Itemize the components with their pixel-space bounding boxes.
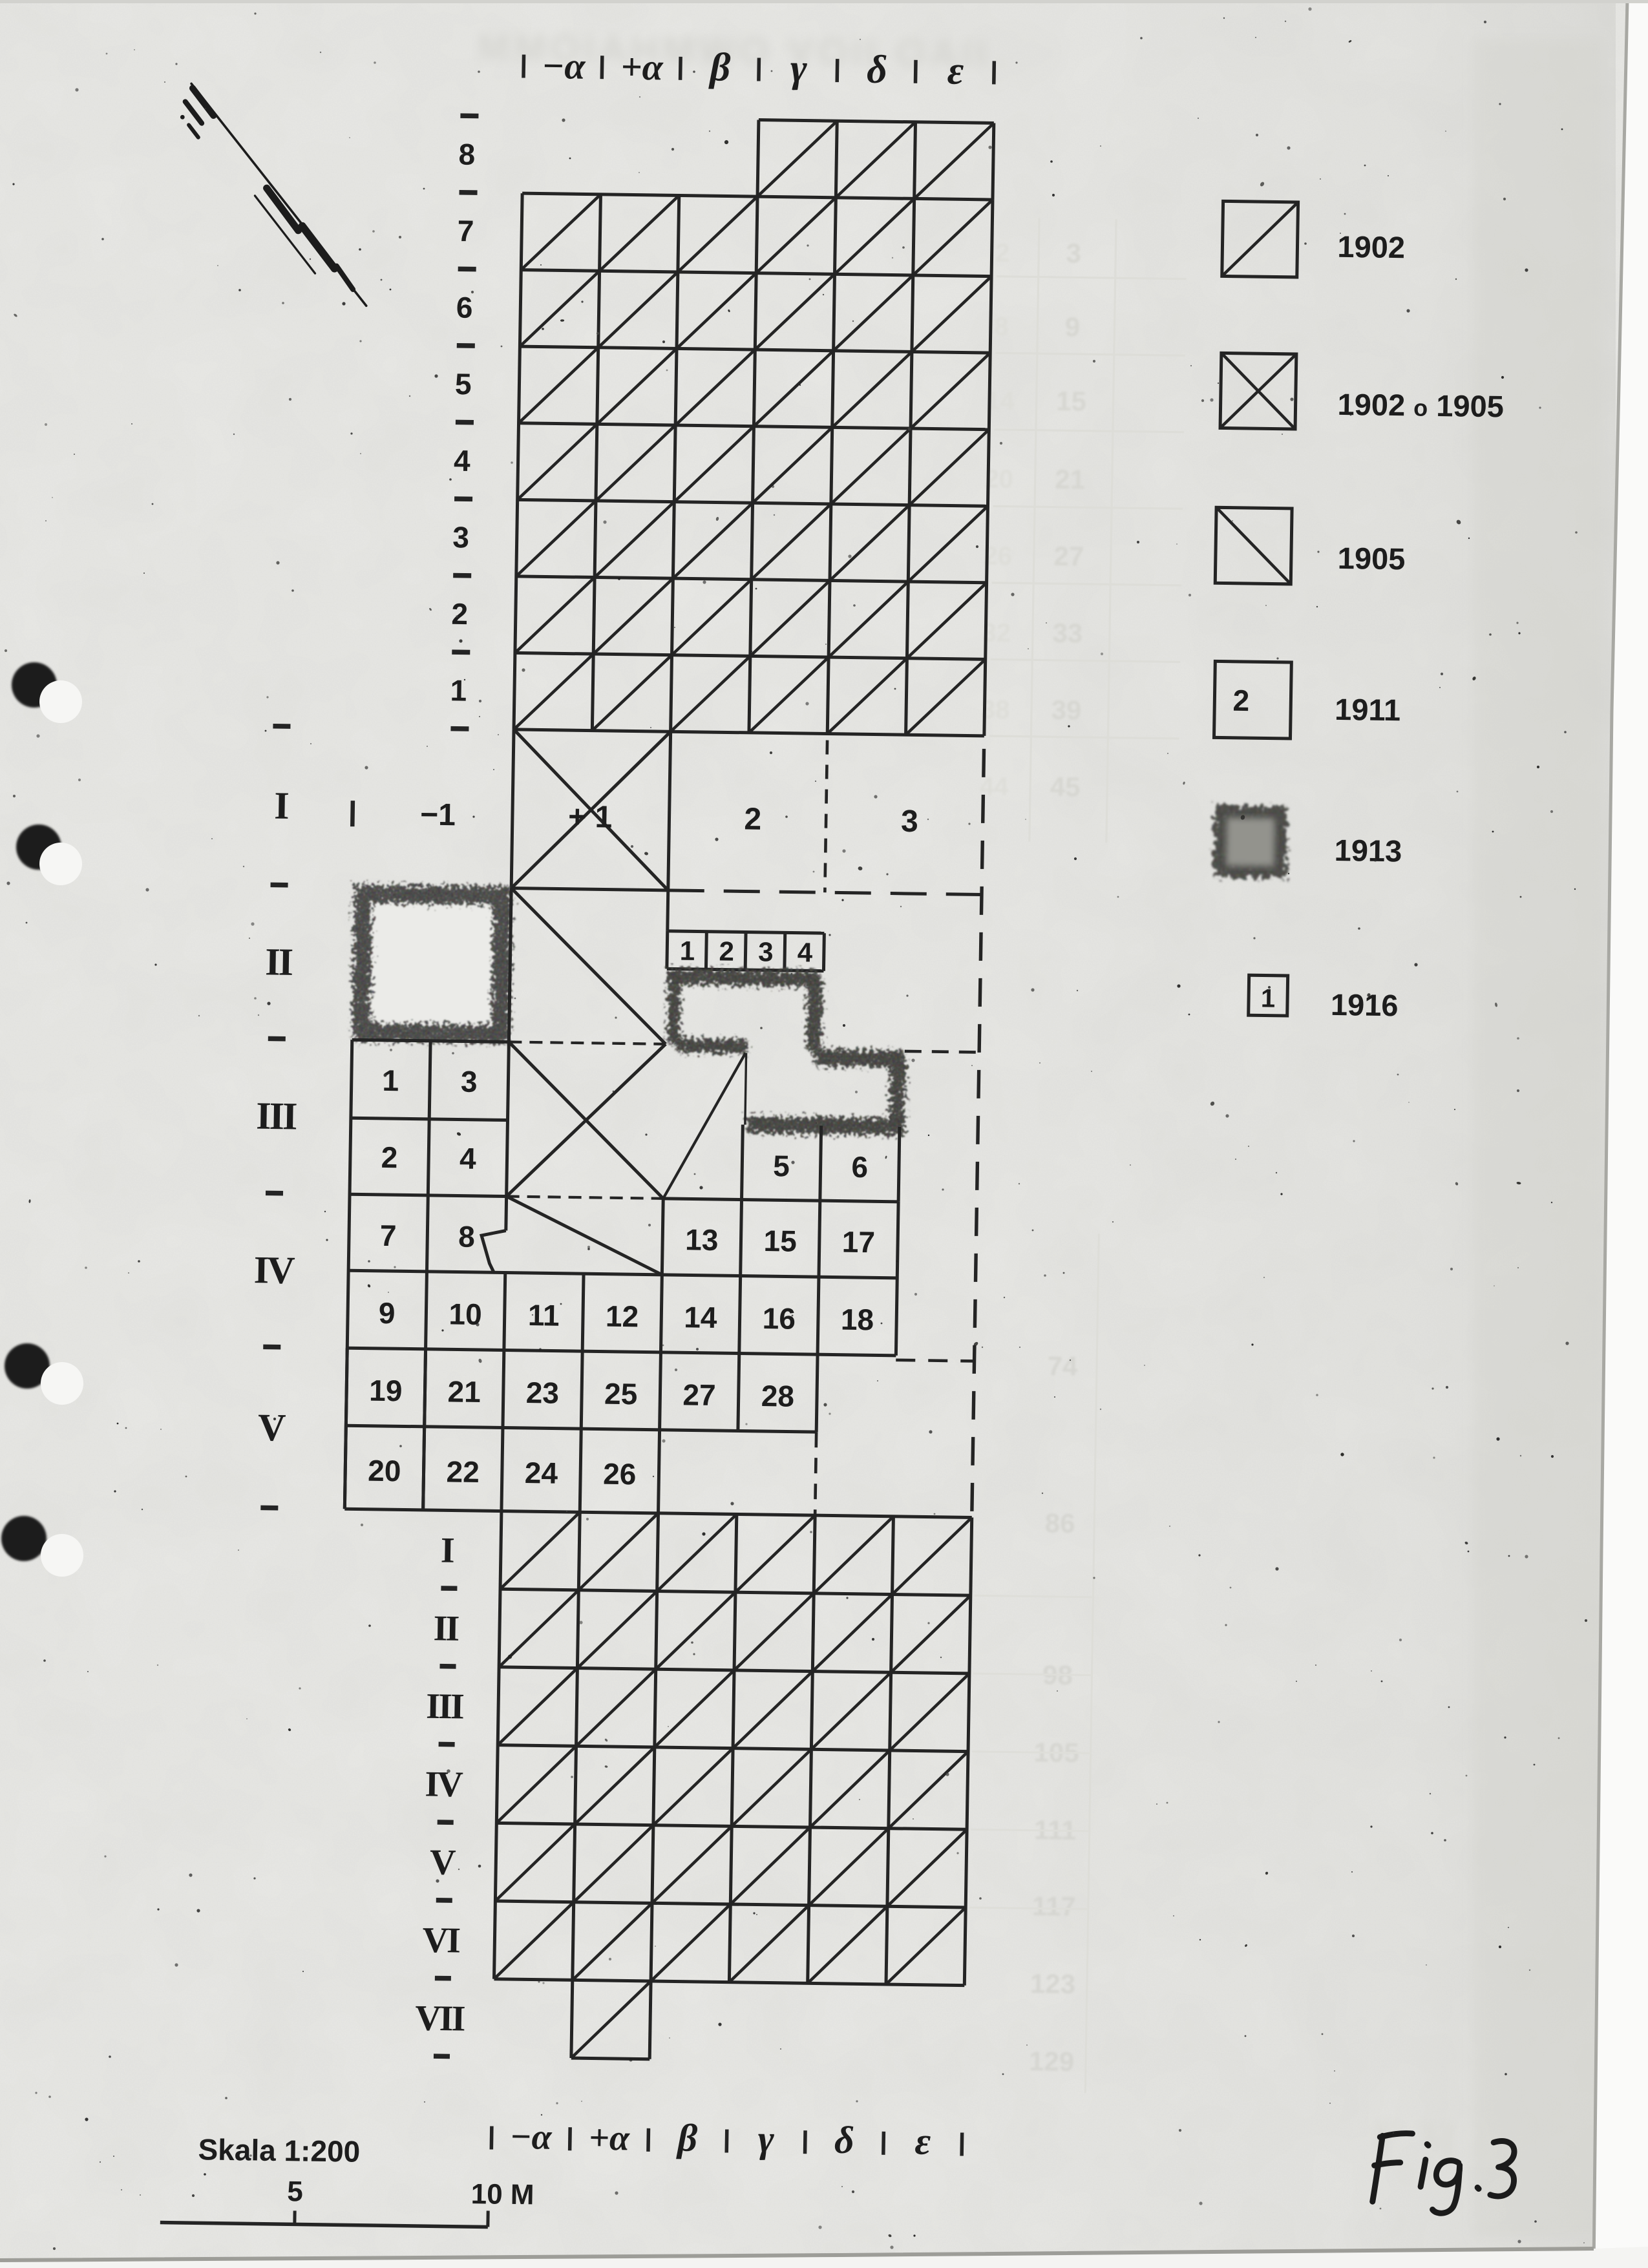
- svg-text:IV: IV: [425, 1764, 463, 1805]
- svg-text:3: 3: [452, 520, 469, 554]
- svg-text:19: 19: [369, 1374, 403, 1408]
- svg-text:2: 2: [451, 597, 468, 631]
- svg-text:1905: 1905: [1337, 541, 1405, 576]
- svg-text:15: 15: [1056, 386, 1086, 417]
- svg-text:VII: VII: [415, 1998, 465, 2039]
- svg-text:24: 24: [524, 1456, 558, 1490]
- svg-text:I: I: [274, 784, 289, 827]
- svg-text:1: 1: [1261, 984, 1276, 1013]
- svg-text:22: 22: [446, 1454, 480, 1489]
- svg-text:1916: 1916: [1331, 987, 1399, 1022]
- svg-text:33: 33: [1052, 618, 1083, 649]
- svg-text:9: 9: [379, 1296, 396, 1330]
- svg-text:2: 2: [381, 1140, 397, 1174]
- svg-text:20: 20: [368, 1454, 401, 1488]
- svg-text:8: 8: [458, 137, 475, 171]
- svg-text:17: 17: [841, 1225, 875, 1259]
- svg-text:86: 86: [1044, 1507, 1075, 1538]
- svg-text:1: 1: [680, 936, 695, 966]
- svg-text:14: 14: [684, 1300, 717, 1334]
- svg-text:γ: γ: [790, 47, 807, 90]
- svg-text:28: 28: [761, 1379, 794, 1413]
- svg-text:6: 6: [456, 291, 473, 324]
- svg-text:−α: −α: [509, 2117, 553, 2158]
- svg-text:27: 27: [682, 1378, 716, 1412]
- svg-text:45: 45: [1050, 772, 1080, 803]
- svg-text:7: 7: [457, 214, 474, 247]
- svg-text:ε: ε: [947, 48, 964, 92]
- svg-text:V: V: [258, 1406, 286, 1449]
- svg-text:27: 27: [1053, 541, 1084, 572]
- svg-text:3: 3: [758, 936, 774, 967]
- svg-text:123: 123: [1030, 1968, 1076, 1999]
- svg-text:74: 74: [1047, 1350, 1078, 1381]
- svg-text:5: 5: [773, 1149, 790, 1182]
- svg-text:−α: −α: [542, 45, 586, 87]
- svg-text:5: 5: [287, 2176, 303, 2207]
- svg-text:β: β: [676, 2116, 698, 2159]
- svg-text:δ: δ: [834, 2119, 855, 2161]
- svg-text:IV: IV: [253, 1248, 295, 1292]
- svg-text:8: 8: [994, 313, 1009, 341]
- svg-text:16: 16: [762, 1301, 796, 1336]
- svg-text:Skala 1:200: Skala 1:200: [198, 2132, 360, 2168]
- svg-text:β: β: [708, 45, 731, 89]
- svg-text:γ: γ: [757, 2117, 774, 2160]
- svg-text:2: 2: [744, 802, 762, 836]
- svg-text:+α: +α: [620, 46, 664, 89]
- svg-text:129: 129: [1029, 2046, 1075, 2077]
- svg-text:1911: 1911: [1335, 692, 1401, 727]
- svg-text:23: 23: [525, 1376, 559, 1410]
- svg-text:III: III: [426, 1686, 464, 1727]
- svg-text:1913: 1913: [1334, 833, 1402, 868]
- svg-text:II: II: [265, 940, 293, 983]
- svg-text:II: II: [433, 1608, 459, 1649]
- svg-text:+α: +α: [589, 2118, 631, 2159]
- svg-text:4: 4: [798, 937, 814, 967]
- svg-text:25: 25: [604, 1377, 638, 1411]
- svg-text:−1: −1: [420, 798, 456, 833]
- svg-text:21: 21: [1055, 464, 1085, 495]
- svg-text:4: 4: [460, 1142, 477, 1175]
- svg-text:2: 2: [995, 239, 1010, 268]
- svg-text:15: 15: [763, 1224, 797, 1258]
- svg-text:7: 7: [379, 1219, 396, 1252]
- svg-text:+ 1: + 1: [568, 800, 613, 835]
- svg-text:5: 5: [455, 367, 472, 401]
- svg-text:6: 6: [851, 1150, 868, 1184]
- svg-text:8: 8: [458, 1220, 475, 1254]
- svg-text:2: 2: [1232, 684, 1249, 717]
- svg-text:26: 26: [603, 1457, 637, 1491]
- svg-text:1: 1: [450, 673, 467, 707]
- svg-text:4: 4: [454, 444, 471, 478]
- svg-text:V: V: [430, 1842, 456, 1883]
- svg-text:21: 21: [447, 1374, 481, 1409]
- svg-text:2: 2: [719, 936, 734, 966]
- svg-text:1: 1: [382, 1064, 399, 1097]
- svg-text:3: 3: [1066, 238, 1081, 268]
- svg-text:III: III: [256, 1095, 297, 1138]
- svg-text:39: 39: [1051, 695, 1081, 726]
- svg-text:9: 9: [1064, 311, 1080, 342]
- svg-text:1902: 1902: [1337, 229, 1405, 264]
- svg-text:117: 117: [1032, 1891, 1077, 1922]
- svg-text:13: 13: [685, 1223, 719, 1257]
- svg-text:3: 3: [461, 1065, 478, 1098]
- svg-text:I: I: [440, 1531, 454, 1571]
- svg-text:ε: ε: [914, 2119, 931, 2162]
- svg-text:VI: VI: [422, 1920, 460, 1961]
- svg-text:12: 12: [606, 1299, 639, 1334]
- svg-text:3: 3: [901, 804, 919, 839]
- svg-text:18: 18: [841, 1303, 874, 1337]
- svg-text:10 M: 10 M: [470, 2178, 534, 2210]
- svg-text:δ: δ: [867, 48, 888, 92]
